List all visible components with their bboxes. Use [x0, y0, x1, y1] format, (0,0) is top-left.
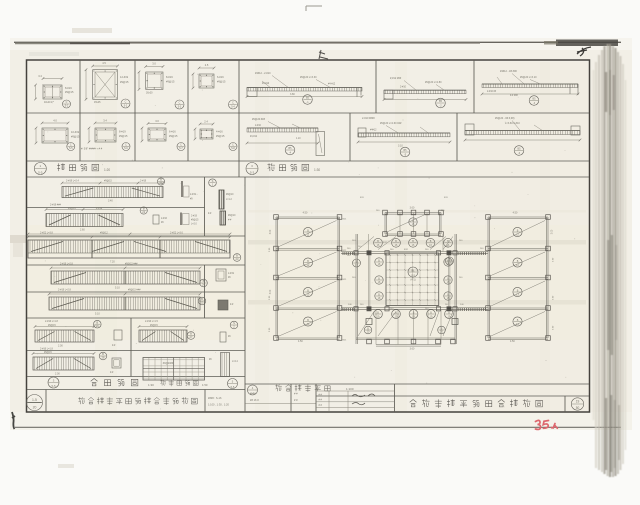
svg-text:#4#12 - 2-#10: #4#12 - 2-#10 [255, 72, 271, 75]
svg-text:4.0: 4.0 [53, 119, 57, 123]
svg-text:2-#10: 2-#10 [255, 125, 262, 127]
svg-text:#9@15: #9@15 [71, 135, 80, 139]
svg-text:#9@15: #9@15 [68, 207, 76, 210]
svg-text:#9@15: #9@15 [169, 134, 178, 138]
svg-text:2-#19: 2-#19 [190, 194, 197, 196]
svg-text:# #: # # [294, 398, 298, 402]
svg-text:C: C [125, 144, 127, 147]
svg-text:#-# ###: #-# ### [510, 95, 519, 97]
svg-text:2-#16 L=1.5: 2-#16 L=1.5 [145, 320, 158, 323]
svg-text:2-#19 L=2.8: 2-#19 L=2.8 [60, 263, 73, 266]
svg-text:#9@15 ###: #9@15 ### [128, 289, 141, 292]
svg-text:2-#19 L=2.4: 2-#19 L=2.4 [66, 180, 79, 183]
svg-text:2-#19: 2-#19 [140, 180, 147, 183]
svg-text:S: S [233, 321, 235, 325]
svg-text:45x45: 45x45 [94, 101, 101, 104]
svg-text:3.10: 3.10 [398, 145, 403, 148]
svg-text:B: B [96, 320, 98, 324]
svg-text:5.10: 5.10 [115, 287, 120, 290]
svg-text:3.60: 3.60 [410, 348, 415, 351]
svg-text:C: C [66, 101, 68, 104]
svg-text:#9@20 L=3.30: #9@20 L=3.30 [300, 76, 317, 79]
svg-text:1-5: 1-5 [32, 398, 37, 402]
svg-text:2-#19 ###: 2-#19 ### [50, 204, 61, 207]
svg-text:4.50: 4.50 [510, 340, 515, 343]
svg-text:8-#19: 8-#19 [166, 75, 173, 79]
svg-text:2.00: 2.00 [58, 345, 63, 348]
svg-text:7.20: 7.20 [110, 261, 115, 264]
svg-text:1.10: 1.10 [296, 138, 301, 140]
svg-text:4.50: 4.50 [513, 212, 518, 215]
svg-text:#9@10: #9@10 [226, 194, 234, 196]
svg-text:4.50: 4.50 [303, 212, 308, 215]
svg-text:1:50: 1:50 [202, 383, 208, 387]
svg-text:5-5: 5-5 [51, 384, 55, 388]
svg-text:1:100: 1:100 [346, 387, 354, 391]
svg-text:40x40 #,*: 40x40 #,* [44, 101, 54, 104]
svg-text:#9@15: #9@15 [217, 80, 226, 84]
svg-text:6-#16: 6-#16 [217, 75, 224, 79]
svg-text:2-#19 L=2.8: 2-#19 L=2.8 [58, 289, 71, 292]
svg-text:# # #: # # # [250, 392, 256, 396]
svg-text:6-#16: 6-#16 [169, 130, 176, 134]
svg-text:#4#12: #4#12 [370, 130, 377, 132]
svg-text:2-#19: 2-#19 [96, 207, 103, 210]
svg-text:1:30: 1:30 [148, 383, 154, 387]
svg-text:#9@20 - ## #,##): #9@20 - ## #,##) [495, 117, 515, 120]
svg-text:4.5: 4.5 [102, 61, 106, 65]
svg-text:5.10: 5.10 [95, 313, 100, 316]
svg-text:B: B [102, 352, 104, 356]
svg-text:3.0: 3.0 [152, 62, 156, 66]
svg-text:2.4: 2.4 [204, 120, 208, 124]
svg-text:#4#12 - ## #9#: #4#12 - ## #9# [500, 70, 517, 73]
svg-text:1:100 , 1:30 , 1:20: 1:100 , 1:30 , 1:20 [208, 403, 229, 407]
svg-text:L=3.60 2-#10: L=3.60 2-#10 [505, 122, 520, 125]
svg-text:5-3: 5-3 [250, 171, 255, 175]
svg-text:#9@15: #9@15 [191, 220, 199, 222]
svg-text:C: C [70, 144, 72, 147]
svg-text:#9@15: #9@15 [65, 90, 74, 94]
svg-text:1:20: 1:20 [104, 168, 110, 172]
svg-text:#9@15: #9@15 [216, 134, 225, 138]
svg-text:30x30: 30x30 [146, 92, 153, 95]
svg-text:2-#10 ####: 2-#10 #### [362, 117, 375, 120]
svg-text:3.40: 3.40 [108, 200, 113, 203]
svg-text:#9@15: #9@15 [120, 80, 129, 84]
svg-text:#9@20##: #9@20## [163, 362, 174, 365]
svg-text:C: C [125, 101, 127, 104]
svg-text:C: C [232, 102, 234, 105]
svg-text:8-#19: 8-#19 [65, 86, 72, 90]
svg-text:#9@15: #9@15 [104, 180, 112, 183]
svg-text:B: B [236, 254, 238, 258]
svg-text:#9@20 L=3.10: #9@20 L=3.10 [520, 76, 537, 79]
svg-text:#### : S-16: #### : S-16 [208, 396, 222, 400]
svg-text:#9@15: #9@15 [150, 324, 158, 327]
svg-text:5-5: 5-5 [38, 171, 43, 175]
svg-text:2.00: 2.00 [55, 373, 60, 376]
svg-text:#9@10: #9@10 [228, 215, 236, 217]
svg-text:3.00: 3.00 [270, 289, 272, 294]
svg-text:#9@20 ###: #9@20 ### [252, 118, 266, 121]
svg-text:C: C [232, 144, 234, 147]
svg-text:#9@15: #9@15 [166, 80, 175, 84]
svg-text:#9@20 L=2.80: #9@20 L=2.80 [425, 81, 442, 84]
svg-text:2-#19: 2-#19 [191, 216, 198, 218]
svg-text:3.60: 3.60 [410, 207, 415, 210]
svg-text:#9@15: #9@15 [48, 324, 56, 327]
svg-text:50: 50 [576, 406, 580, 410]
svg-text:2-#10: 2-#10 [400, 87, 407, 89]
svg-text:4.50: 4.50 [298, 340, 303, 343]
svg-text:(4-1): (4-1) [410, 279, 415, 282]
svg-text:19: 19 [576, 400, 580, 404]
svg-text:B: B [190, 332, 192, 336]
svg-text:S: S [212, 179, 214, 183]
svg-text:L=1.2: L=1.2 [226, 199, 233, 201]
svg-text:3.4: 3.4 [38, 74, 42, 78]
svg-text:L=2.0: L=2.0 [191, 224, 198, 226]
svg-text:12-#19: 12-#19 [120, 75, 129, 79]
svg-text:1:30: 1:30 [314, 168, 320, 172]
svg-text:2-#10 ##: 2-#10 ## [487, 91, 497, 93]
svg-text:C: C [180, 144, 182, 147]
svg-text:2.5: 2.5 [205, 63, 209, 67]
svg-text:4-#16: 4-#16 [216, 130, 223, 134]
svg-text:3.4: 3.4 [103, 119, 107, 123]
svg-text:C: C [179, 102, 181, 105]
svg-text:3.80: 3.80 [290, 93, 295, 96]
svg-text:20: 20 [33, 405, 37, 409]
svg-text:#9@20 L=2.60 #4#: #9@20 L=2.60 #4# [380, 122, 402, 125]
svg-text:3.00: 3.00 [270, 229, 272, 234]
svg-text:2.60: 2.60 [80, 229, 85, 232]
svg-text:#9@15: #9@15 [44, 351, 52, 354]
svg-text:5-5: 5-5 [231, 385, 235, 389]
svg-text:10-#19: 10-#19 [71, 130, 80, 134]
svg-text:L=2.4: L=2.4 [232, 361, 239, 363]
svg-text:2-#16: 2-#16 [161, 218, 168, 220]
svg-text:3.0: 3.0 [155, 119, 159, 123]
svg-text:#4-#12: #4-#12 [328, 84, 336, 86]
svg-text:3.00: 3.00 [552, 229, 554, 234]
svg-text:#4,#12: #4,#12 [250, 136, 258, 138]
svg-text:## 16 #: ## 16 # [250, 398, 259, 402]
svg-text:B: B [201, 297, 203, 301]
svg-text:#: 5/8" ##### + # #: #: 5/8" ##### + # # [81, 148, 103, 151]
svg-text:8-#19: 8-#19 [119, 130, 126, 134]
svg-text:#9@15 ###: #9@15 ### [125, 263, 138, 266]
svg-text:#9@15: #9@15 [119, 134, 128, 138]
svg-text:# #: # # [294, 392, 298, 396]
svg-text:B: B [203, 279, 205, 283]
svg-text:#,#12 ###: #,#12 ### [390, 77, 402, 80]
svg-text:2-#16 L=1.8: 2-#16 L=1.8 [45, 320, 58, 323]
svg-text:2-#19: 2-#19 [228, 273, 235, 275]
